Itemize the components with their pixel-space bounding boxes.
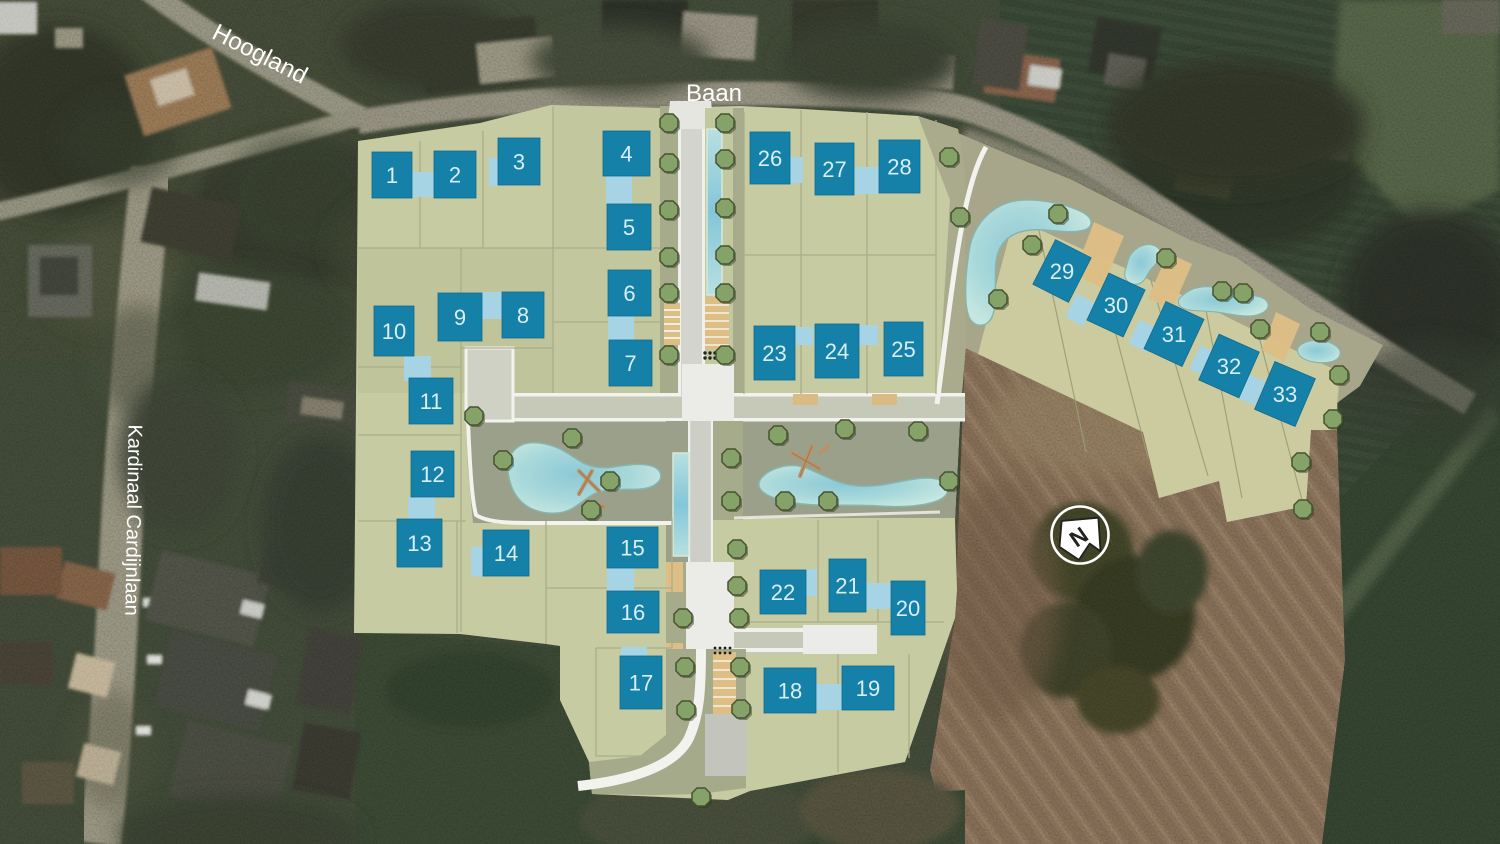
svg-text:5: 5	[623, 215, 635, 240]
svg-text:13: 13	[407, 531, 431, 556]
svg-text:1: 1	[386, 163, 398, 188]
svg-text:16: 16	[621, 600, 645, 625]
svg-text:15: 15	[620, 536, 644, 561]
svg-text:Kardinaal Cardijnlaan: Kardinaal Cardijnlaan	[120, 424, 145, 616]
svg-text:18: 18	[778, 679, 802, 704]
svg-text:21: 21	[835, 574, 859, 599]
svg-text:28: 28	[887, 155, 911, 180]
svg-text:10: 10	[382, 319, 406, 344]
svg-text:6: 6	[623, 281, 635, 306]
svg-text:25: 25	[891, 337, 915, 362]
svg-text:22: 22	[771, 580, 795, 605]
svg-text:19: 19	[856, 676, 880, 701]
svg-text:27: 27	[822, 157, 846, 182]
svg-text:9: 9	[454, 305, 466, 330]
svg-text:31: 31	[1162, 322, 1186, 347]
svg-text:29: 29	[1050, 259, 1074, 284]
svg-text:4: 4	[620, 142, 632, 167]
svg-text:32: 32	[1217, 354, 1241, 379]
svg-text:2: 2	[449, 163, 461, 188]
svg-text:14: 14	[494, 541, 518, 566]
svg-text:11: 11	[420, 389, 443, 414]
svg-text:7: 7	[624, 351, 636, 376]
svg-text:26: 26	[758, 146, 782, 171]
svg-text:24: 24	[825, 339, 849, 364]
svg-text:Baan: Baan	[686, 80, 742, 107]
svg-text:33: 33	[1273, 382, 1297, 407]
svg-text:17: 17	[629, 671, 653, 696]
svg-text:12: 12	[420, 462, 444, 487]
svg-text:30: 30	[1104, 293, 1128, 318]
svg-text:3: 3	[513, 150, 525, 175]
svg-text:20: 20	[896, 596, 920, 621]
svg-text:23: 23	[762, 341, 786, 366]
svg-text:8: 8	[517, 303, 529, 328]
